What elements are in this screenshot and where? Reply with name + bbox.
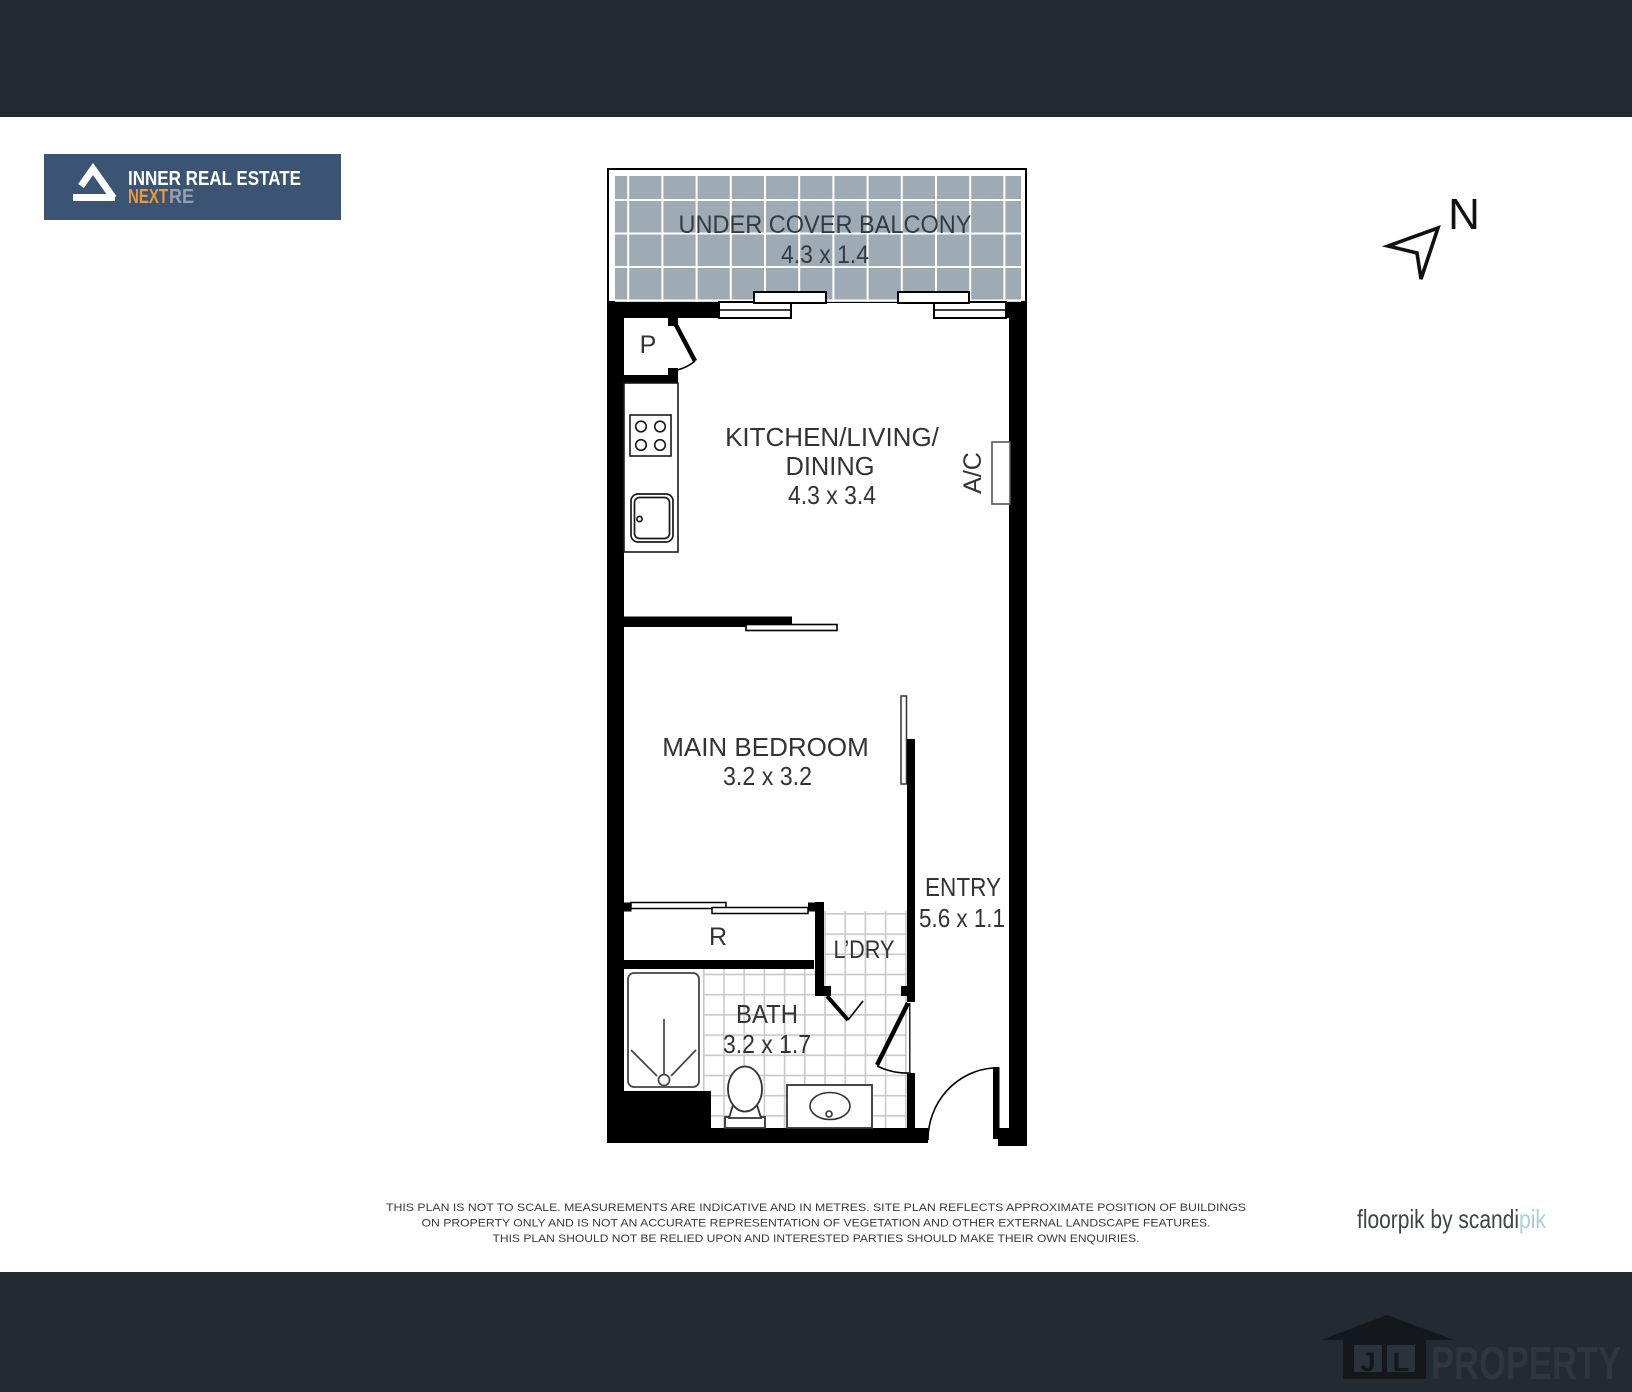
svg-text:UNDER COVER BALCONY: UNDER COVER BALCONY (679, 211, 972, 239)
svg-text:NEXT: NEXT (128, 186, 168, 208)
svg-text:4.3 x 1.4: 4.3 x 1.4 (781, 241, 869, 269)
svg-text:THIS PLAN SHOULD NOT BE RELIED: THIS PLAN SHOULD NOT BE RELIED UPON AND … (493, 1233, 1140, 1245)
svg-text:R: R (709, 923, 727, 951)
svg-text:L: L (1393, 1347, 1410, 1377)
svg-text:3.2 x 1.7: 3.2 x 1.7 (723, 1029, 811, 1059)
svg-text:KITCHEN/LIVING/: KITCHEN/LIVING/ (725, 422, 940, 452)
svg-text:3.2 x 3.2: 3.2 x 3.2 (723, 761, 812, 791)
svg-text:THIS PLAN IS NOT TO SCALE. MEA: THIS PLAN IS NOT TO SCALE. MEASUREMENTS … (386, 1202, 1246, 1214)
svg-text:L’DRY: L’DRY (834, 936, 895, 964)
svg-text:4.3 x 3.4: 4.3 x 3.4 (788, 480, 876, 510)
svg-text:pik: pik (1519, 1204, 1547, 1234)
svg-text:A/C: A/C (959, 452, 987, 494)
svg-text:DINING: DINING (786, 451, 875, 481)
svg-text:P: P (640, 331, 657, 359)
svg-text:ENTRY: ENTRY (925, 872, 1001, 902)
svg-text:ON PROPERTY ONLY AND IS NOT AN: ON PROPERTY ONLY AND IS NOT AN ACCURATE … (422, 1218, 1211, 1230)
svg-text:PROPERTY: PROPERTY (1431, 1337, 1621, 1389)
svg-text:floorpik by scandi: floorpik by scandi (1357, 1204, 1519, 1234)
svg-text:MAIN BEDROOM: MAIN BEDROOM (662, 732, 869, 762)
svg-text:BATH: BATH (736, 999, 798, 1029)
svg-text:N: N (1448, 190, 1480, 239)
svg-text:RE: RE (169, 186, 194, 208)
svg-text:J: J (1360, 1347, 1375, 1377)
svg-text:5.6 x 1.1: 5.6 x 1.1 (919, 903, 1005, 933)
